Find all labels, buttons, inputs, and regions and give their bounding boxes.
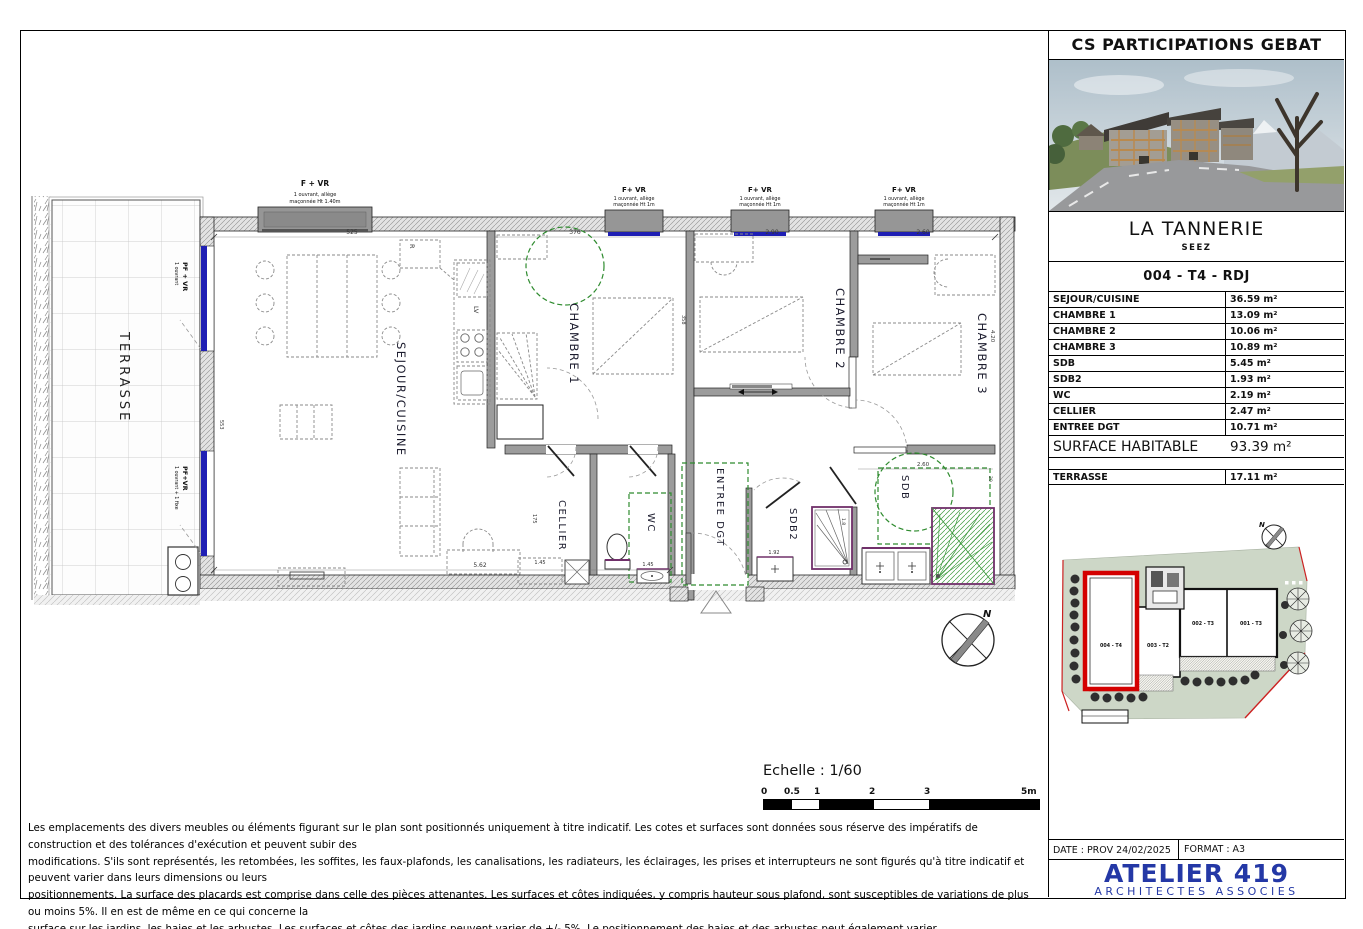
site-unit-003: 003 - T2 [1147, 643, 1169, 649]
furniture-chambre3 [858, 255, 995, 375]
svg-text:PF + VR: PF + VR [181, 262, 189, 291]
site-north-label: N [1259, 521, 1265, 529]
svg-text:maçonnée Ht 1.40m: maçonnée Ht 1.40m [289, 198, 340, 205]
compass-icon: N [942, 609, 994, 666]
scale-bar: Echelle : 1/60 0 0.5 1 2 3 5m [763, 763, 1045, 810]
svg-text:F+ VR: F+ VR [892, 186, 917, 194]
disclaimer-line: modifications. S'ils sont représentés, l… [28, 854, 1042, 888]
room-label-chambre3: CHAMBRE 3 [975, 313, 989, 395]
table-row: SEJOUR/CUISINE36.59 m² [1049, 292, 1344, 308]
date-label: DATE : PROV 24/02/2025 [1049, 840, 1179, 859]
project-city: SEEZ [1049, 243, 1344, 253]
fixtures [518, 507, 994, 584]
room-label-chambre1: CHAMBRE 1 [567, 303, 581, 385]
svg-text:F+ VR: F+ VR [748, 186, 773, 194]
svg-text:1 ouvrant: 1 ouvrant [173, 262, 179, 285]
svg-text:1 ouvrant, allège: 1 ouvrant, allège [614, 195, 655, 202]
room-label-sejour: SEJOUR/CUISINE [394, 342, 408, 457]
kitchen-dishwasher-label: LV [472, 306, 480, 314]
format-label: FORMAT : A3 [1179, 844, 1344, 855]
room-label-terrasse: TERRASSE [116, 331, 131, 423]
svg-text:525: 525 [346, 229, 358, 236]
scale-title: Echelle : 1/60 [763, 763, 1045, 779]
dim-terrasse-height: 553 [218, 420, 224, 430]
table-row: CELLIER2.47 m² [1049, 404, 1344, 420]
project-block: LA TANNERIE SEEZ [1049, 212, 1344, 262]
table-row: WC2.19 m² [1049, 388, 1344, 404]
site-unit-001: 001 - T3 [1240, 621, 1262, 627]
scale-bar-segments [763, 799, 1040, 810]
firm-subtitle: ARCHITECTES ASSOCIES [1049, 886, 1344, 897]
kitchen-fridge-label: R [408, 244, 416, 249]
site-trees [1287, 588, 1312, 674]
total-surface-row: SURFACE HABITABLE 93.39 m² [1049, 436, 1344, 458]
svg-text:175: 175 [531, 514, 537, 524]
disclaimer-line: Les emplacements des divers meubles ou é… [28, 820, 1042, 854]
svg-text:20: 20 [987, 476, 993, 482]
site-unit-004-outline [1085, 573, 1137, 689]
svg-text:1 ouvrant, allège: 1 ouvrant, allège [740, 195, 781, 202]
date-format-row: DATE : PROV 24/02/2025 FORMAT : A3 [1049, 839, 1344, 860]
room-label-cellier: CELLIER [556, 500, 567, 551]
surface-table: SEJOUR/CUISINE36.59 m² CHAMBRE 113.09 m²… [1049, 292, 1344, 485]
disclaimer: Les emplacements des divers meubles ou é… [28, 820, 1042, 929]
svg-text:F+ VR: F+ VR [622, 186, 647, 194]
site-unit-004: 004 - T4 [1100, 643, 1123, 649]
svg-text:1.8: 1.8 [840, 518, 846, 525]
table-row: SDB5.45 m² [1049, 356, 1344, 372]
svg-text:358: 358 [680, 315, 686, 325]
table-row: CHAMBRE 210.06 m² [1049, 324, 1344, 340]
firm-name: ATELIER 419 [1049, 862, 1344, 886]
svg-text:PF+VR: PF+VR [181, 466, 189, 491]
scale-ticks: 0 0.5 1 2 3 5m [763, 787, 1045, 799]
svg-text:1.45: 1.45 [642, 562, 653, 568]
room-label-wc: WC [645, 513, 656, 533]
svg-text:2.90: 2.90 [765, 229, 779, 236]
unit-title: 004 - T4 - RDJ [1049, 262, 1344, 292]
svg-text:1 ouvrant + 1 fixe: 1 ouvrant + 1 fixe [173, 466, 179, 510]
table-row: CHAMBRE 113.09 m² [1049, 308, 1344, 324]
north-label: N [983, 609, 992, 620]
disclaimer-line: positionnements. La surface des placards… [28, 887, 1042, 921]
table-row: CHAMBRE 310.89 m² [1049, 340, 1344, 356]
svg-text:2.60: 2.60 [917, 462, 930, 468]
furniture-sejour [256, 240, 520, 586]
terrasse-row: TERRASSE 17.11 m² [1049, 469, 1344, 485]
svg-text:F + VR: F + VR [301, 179, 329, 188]
table-row: SDB21.93 m² [1049, 372, 1344, 388]
svg-text:2.60: 2.60 [916, 229, 930, 236]
furniture-chambre1 [497, 235, 673, 439]
floor-plan: TERRASSE PF + VR 1 ouvrant PF+VR 1 ouv [30, 170, 1045, 730]
site-plan: 004 - T4 003 - T2 002 - T3 001 - T3 N [1049, 485, 1344, 839]
disclaimer-line: surface sur les jardins, les haies et le… [28, 921, 1042, 929]
furniture-chambre2 [695, 234, 803, 352]
svg-text:1.92: 1.92 [768, 550, 779, 556]
room-label-sdb: SDB [899, 475, 910, 500]
total-surface-label: SURFACE HABITABLE [1049, 439, 1226, 455]
site-compass-icon: N [1259, 521, 1286, 549]
project-photo [1049, 60, 1344, 212]
svg-text:1 ouvrant, allège: 1 ouvrant, allège [294, 191, 337, 198]
dimension-top: 525 376 2.90 2.60 4.20 358 [211, 229, 1000, 343]
svg-text:5.62: 5.62 [473, 562, 487, 569]
room-label-sdb2: SDB2 [787, 508, 798, 541]
project-name: LA TANNERIE [1049, 218, 1344, 240]
svg-text:376: 376 [569, 229, 581, 236]
terrace: TERRASSE [32, 196, 203, 605]
table-row: ENTREE DGT10.71 m² [1049, 420, 1344, 436]
site-unit-002: 002 - T3 [1192, 621, 1214, 627]
room-label-entree: ENTREE DGT [714, 468, 725, 547]
window-labels-fvr: F + VR 1 ouvrant, allège maçonnée Ht 1.4… [289, 179, 925, 208]
architect-firm: ATELIER 419 ARCHITECTES ASSOCIES [1049, 860, 1344, 897]
plan-sheet: TERRASSE PF + VR 1 ouvrant PF+VR 1 ouv [0, 0, 1363, 929]
total-surface-value: 93.39 m² [1226, 439, 1344, 455]
svg-text:maçonnée Ht 1m: maçonnée Ht 1m [613, 201, 655, 208]
svg-text:maçonnée Ht 1m: maçonnée Ht 1m [883, 201, 925, 208]
room-label-chambre2: CHAMBRE 2 [833, 288, 847, 370]
company-title: CS PARTICIPATIONS GEBAT [1049, 30, 1344, 60]
svg-text:1 ouvrant, allège: 1 ouvrant, allège [884, 195, 925, 202]
title-block-panel: CS PARTICIPATIONS GEBAT [1048, 30, 1344, 897]
svg-text:maçonnée Ht 1m: maçonnée Ht 1m [739, 201, 781, 208]
svg-text:1.45: 1.45 [534, 560, 545, 566]
